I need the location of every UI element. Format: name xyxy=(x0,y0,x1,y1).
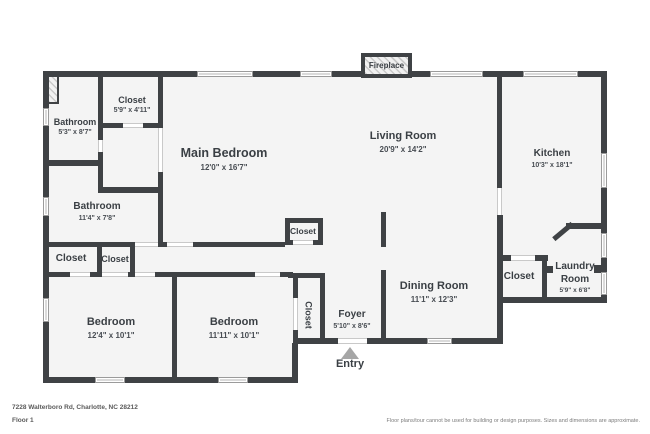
door-opening xyxy=(293,240,313,245)
room-name: Bedroom xyxy=(209,316,260,330)
window-pane xyxy=(302,73,330,75)
wall xyxy=(601,71,607,153)
room-dimensions: 12'0" x 16'7" xyxy=(181,163,268,173)
room-name: Closet xyxy=(290,226,316,237)
wall xyxy=(298,338,338,344)
wall xyxy=(172,277,177,383)
wall xyxy=(313,240,323,245)
wall xyxy=(381,270,386,338)
window-pane xyxy=(45,110,47,124)
room-name: Living Room xyxy=(370,130,437,144)
wall xyxy=(601,295,607,303)
wall xyxy=(285,240,293,245)
room-label-bathroom-1: Bathroom5'3" x 8'7" xyxy=(54,117,97,138)
room-name: Closet xyxy=(114,95,151,106)
door-opening xyxy=(293,298,298,330)
door-opening xyxy=(511,255,535,261)
wall xyxy=(43,242,135,247)
wall xyxy=(43,160,103,166)
wall xyxy=(43,216,49,298)
room-label-laundry-room: Laundry Room5'9" x 6'8" xyxy=(547,261,603,295)
window xyxy=(601,153,607,188)
window xyxy=(523,71,578,77)
window-pane xyxy=(45,300,47,320)
door-opening xyxy=(135,272,155,277)
door-opening xyxy=(497,188,502,215)
window xyxy=(43,298,49,322)
room-label-bedroom-2: Bedroom11'11" x 10'1" xyxy=(209,316,260,341)
entry-label: Entry xyxy=(336,358,364,370)
wall xyxy=(43,71,49,108)
room-name: Main Bedroom xyxy=(181,146,268,162)
window xyxy=(300,71,332,77)
wall xyxy=(158,172,163,247)
room-label-main-bedroom: Main Bedroom12'0" x 16'7" xyxy=(181,146,268,173)
door-opening xyxy=(167,242,193,247)
room-name: Closet xyxy=(101,254,129,265)
door-opening xyxy=(70,272,90,277)
wall xyxy=(497,255,511,261)
room-name: Dining Room xyxy=(400,280,468,294)
wall xyxy=(497,71,502,188)
room-dimensions: 10'3" x 18'1" xyxy=(531,162,572,171)
room-name: Closet xyxy=(56,253,87,266)
window xyxy=(95,377,125,383)
room-label-foyer: Foyer5'10" x 8'6" xyxy=(333,309,370,331)
room-dimensions: 12'4" x 10'1" xyxy=(87,331,135,341)
wall xyxy=(497,297,607,303)
room-name: Foyer xyxy=(333,309,370,322)
wall xyxy=(43,322,49,383)
floor-number-label: Floor 1 xyxy=(12,417,34,424)
wall xyxy=(43,272,70,277)
wall xyxy=(483,71,523,77)
room-dimensions: 20'9" x 14'2" xyxy=(370,145,437,155)
room-dimensions: 11'1" x 12'3" xyxy=(400,295,468,305)
room-label-closet-top: Closet5'9" x 4'11" xyxy=(114,95,151,116)
room-dimensions: 11'4" x 7'8" xyxy=(73,215,120,224)
wall xyxy=(98,187,162,193)
wall xyxy=(412,71,430,77)
room-label-closet-bedroom2: Closet xyxy=(302,301,313,329)
window-pane xyxy=(603,274,605,293)
room-label-bathroom-2: Bathroom11'4" x 7'8" xyxy=(73,201,120,223)
door-opening xyxy=(255,272,280,277)
wall xyxy=(248,377,298,383)
door-opening xyxy=(98,140,103,152)
wall xyxy=(332,71,363,77)
window xyxy=(43,108,49,126)
window-pane xyxy=(525,73,576,75)
window xyxy=(43,197,49,216)
disclaimer-text: Floor plans/tour cannot be used for buil… xyxy=(387,418,640,424)
room-name: Laundry Room xyxy=(547,261,603,286)
wall xyxy=(293,277,298,298)
wall xyxy=(155,272,255,277)
wall xyxy=(452,338,503,344)
window-pane xyxy=(603,235,605,256)
wall xyxy=(381,212,386,247)
window xyxy=(218,377,248,383)
floor-plan: Fireplace Entry 7228 Walterboro Rd, Char… xyxy=(0,0,650,434)
door-opening xyxy=(135,242,158,247)
door-opening xyxy=(338,338,367,344)
window-pane xyxy=(45,199,47,214)
room-label-kitchen: Kitchen10'3" x 18'1" xyxy=(531,148,572,170)
window-pane xyxy=(220,379,246,381)
room-label-closet-hall-left: Closet xyxy=(56,253,87,266)
window xyxy=(197,71,253,77)
wall xyxy=(253,71,300,77)
room-label-closet-living: Closet xyxy=(290,226,316,237)
wall xyxy=(292,343,298,383)
wall xyxy=(320,273,325,338)
room-name: Kitchen xyxy=(531,148,572,161)
wall xyxy=(103,123,123,128)
room-name: Bedroom xyxy=(87,316,135,330)
window-pane xyxy=(432,73,481,75)
room-name: Closet xyxy=(504,271,535,284)
window-pane xyxy=(199,73,251,75)
room-dimensions: 5'9" x 6'8" xyxy=(547,287,603,295)
address-text: 7228 Walterboro Rd, Charlotte, NC 28212 xyxy=(12,404,138,411)
window xyxy=(430,71,483,77)
window-pane xyxy=(97,379,123,381)
room-name: Bathroom xyxy=(73,201,120,214)
room-dimensions: 5'3" x 8'7" xyxy=(54,129,97,138)
door-opening xyxy=(123,123,143,128)
window xyxy=(601,233,607,258)
wall xyxy=(43,377,95,383)
wall xyxy=(367,338,427,344)
room-name: Closet xyxy=(302,301,313,329)
wall xyxy=(158,71,163,128)
wall xyxy=(90,272,102,277)
room-name: Bathroom xyxy=(54,117,97,128)
wall xyxy=(193,242,285,247)
fireplace-label: Fireplace xyxy=(369,61,404,70)
window-pane xyxy=(429,340,450,342)
wall xyxy=(98,71,103,140)
wall xyxy=(43,71,197,77)
wall xyxy=(566,223,607,229)
door-opening xyxy=(158,128,163,172)
wall xyxy=(293,330,298,343)
room-label-bedroom-1: Bedroom12'4" x 10'1" xyxy=(87,316,135,341)
room-label-closet-hall-right: Closet xyxy=(101,254,129,265)
window xyxy=(427,338,452,344)
room-label-closet-laundry: Closet xyxy=(504,271,535,284)
wall xyxy=(497,215,503,344)
door-opening xyxy=(102,272,128,277)
room-dimensions: 5'9" x 4'11" xyxy=(114,107,151,116)
window-pane xyxy=(603,155,605,186)
room-label-living-room: Living Room20'9" x 14'2" xyxy=(370,130,437,155)
room-dimensions: 11'11" x 10'1" xyxy=(209,331,260,341)
fireplace: Fireplace xyxy=(361,53,412,78)
wall xyxy=(158,242,167,247)
room-dimensions: 5'10" x 8'6" xyxy=(333,323,370,332)
room-label-dining-room: Dining Room11'1" x 12'3" xyxy=(400,280,468,305)
